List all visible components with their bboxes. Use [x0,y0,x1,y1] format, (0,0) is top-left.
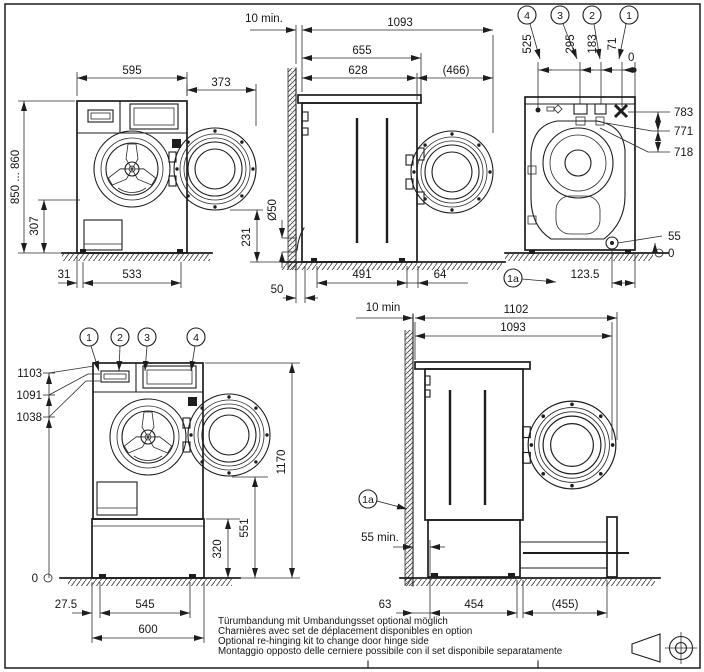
dim-h783: 783 [674,107,693,119]
dim-rear-foot: 50 [271,284,284,296]
dim-foot-inset: 31 [58,269,71,281]
dim-conn-183: 183 [587,34,599,53]
installation-diagram: 595 373 850 ... 860 307 31 533 231 [0,0,704,672]
dim-drawer-extension: (455) [552,599,579,611]
dim-datum-floor: 0 [668,248,674,260]
dim-plinth-height: 320 [212,539,224,558]
dim-overall-depth-bottom: 1102 [504,304,529,316]
dim-body-depth: 628 [348,65,367,77]
dim-h771: 771 [674,126,693,138]
installation-diagram-page: 595 373 850 ... 860 307 31 533 231 [0,0,704,672]
view-side-bottom: 10 min 1102 1093 1a 55 min. 63 454 (455) [356,302,660,618]
dim-plinth-clearance: 55 min. [361,532,399,544]
dim-plinth-width: 600 [138,624,157,636]
callout-1: 1 [626,10,632,22]
dim-feet-distance-front: 533 [122,269,141,281]
dim-conn-295: 295 [565,34,577,53]
dim-conn-525: 525 [522,34,534,53]
dim-door-swing-front: 373 [211,77,230,89]
callout-3: 3 [557,10,563,22]
callout-2b: 2 [117,332,123,344]
dim-h718: 718 [674,147,693,159]
dim-wall-gap-bottom: 10 min [366,302,401,314]
callout-4: 4 [524,10,530,22]
dim-datum-bottom: 0 [32,573,38,585]
dim-door-clearance: 231 [241,227,253,246]
dim-overall-depth-top: 1093 [387,17,413,29]
dim-feet-distance-plinth: 454 [464,599,484,611]
dim-front-overhang: 64 [434,269,447,281]
dim-feet-distance-side: 491 [352,269,371,281]
notes-block: Türumbandung mit Umbandungsset optional … [218,616,563,657]
view-front-top: 595 373 850 ... 860 307 31 533 231 [10,65,282,288]
dim-height-range: 850 ... 860 [10,150,22,204]
dim-door-bottom-height: 551 [239,518,251,537]
dim-conn-1103: 1103 [17,368,42,380]
dim-feet-distance-bottom: 545 [135,599,154,611]
callout-1b: 1 [86,332,92,344]
dim-drain-height: 55 [668,231,681,243]
dim-rear-offset: 63 [379,599,392,611]
dim-conn-1091: 1091 [16,390,42,402]
view-rear-top: 4 3 2 1 525 295 183 71 0 [504,6,693,288]
dim-door-swing-depth: (466) [443,65,470,77]
dim-front-width: 595 [122,65,141,77]
dim-body-depth-bottom: 1093 [500,322,526,334]
projection-target-icon [665,632,697,664]
view-side-top: 10 min. 1093 655 628 (466) Ø50 50 491 64 [245,13,505,303]
dim-overall-height: 1170 [276,450,288,475]
dim-lid-depth: 655 [352,45,371,57]
dim-drain-diameter: Ø50 [267,199,279,221]
projection-cone-icon [632,634,660,662]
detail-ref-1a-top: 1a [507,273,519,285]
dim-datum-top: 0 [628,52,634,64]
dim-drain-offset: 123.5 [571,269,600,281]
projection-symbol [632,632,697,664]
callout-2: 2 [589,10,595,22]
dim-wall-gap-top: 10 min. [245,13,283,25]
detail-ref-1a-bottom: 1a [362,494,374,506]
callout-4b: 4 [193,332,199,344]
note-it: Montaggio opposto delle cerniere possibi… [218,646,563,657]
dim-conn-1038: 1038 [16,412,42,424]
callout-3b: 3 [144,332,150,344]
view-front-bottom: 1 2 3 4 1103 1091 1038 [16,328,300,643]
dim-conn-71: 71 [607,38,619,51]
dim-porthole-bottom: 307 [29,216,41,235]
dim-edge-offset: 27.5 [55,599,77,611]
